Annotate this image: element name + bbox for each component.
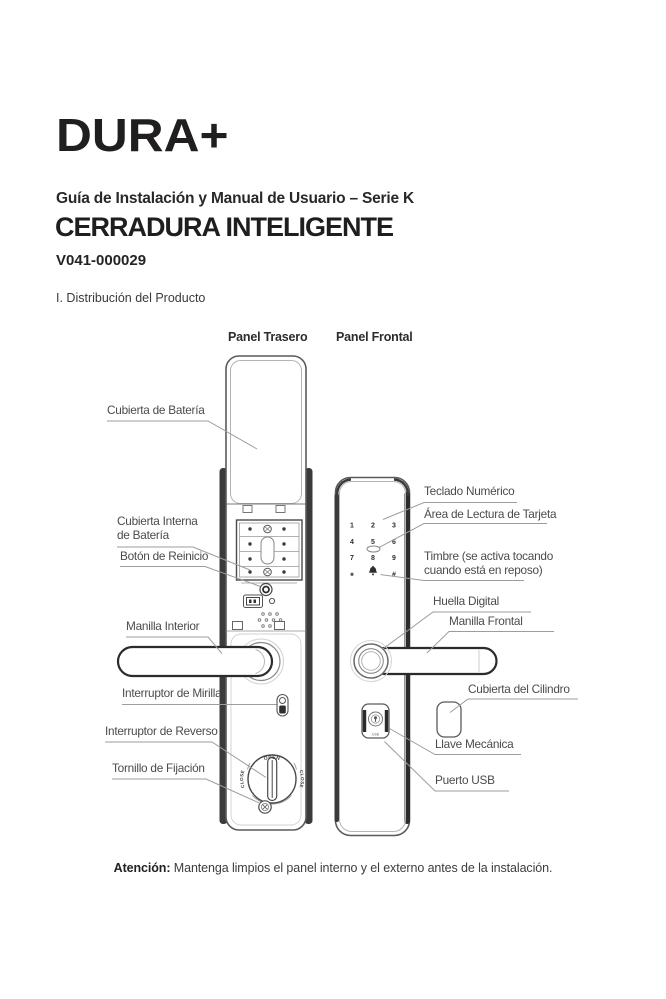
fixing-screw-icon — [259, 801, 271, 813]
key-3: 3 — [392, 523, 396, 530]
key-8: 8 — [371, 555, 375, 562]
front-panel-drawing: 1 2 3 4 5 6 7 8 9 * # — [335, 478, 497, 836]
diagram-canvas: OPEN CLOSE CLOSE 1 2 3 4 — [0, 0, 666, 999]
rear-panel-drawing: OPEN CLOSE CLOSE — [118, 356, 313, 830]
key-7: 7 — [350, 555, 354, 562]
key-hash: # — [392, 572, 396, 579]
leader-cylinder-cover — [450, 699, 578, 713]
inner-handle-drawing — [118, 639, 284, 684]
front-handle-drawing — [351, 641, 497, 682]
keyhole-usb-drawing: USB — [362, 704, 389, 738]
usb-label-text: USB — [372, 733, 380, 737]
reset-button-icon — [260, 584, 272, 596]
key-2: 2 — [371, 523, 375, 530]
front-left-trim — [335, 494, 340, 822]
card-reader-icon — [367, 546, 380, 552]
key-star: * — [350, 571, 354, 582]
peephole-switch-icon — [277, 695, 288, 717]
key-9: 9 — [392, 555, 396, 562]
key-5: 5 — [371, 539, 375, 546]
key-1: 1 — [350, 523, 354, 530]
battery-compartment — [237, 520, 303, 583]
key-4: 4 — [350, 539, 354, 546]
